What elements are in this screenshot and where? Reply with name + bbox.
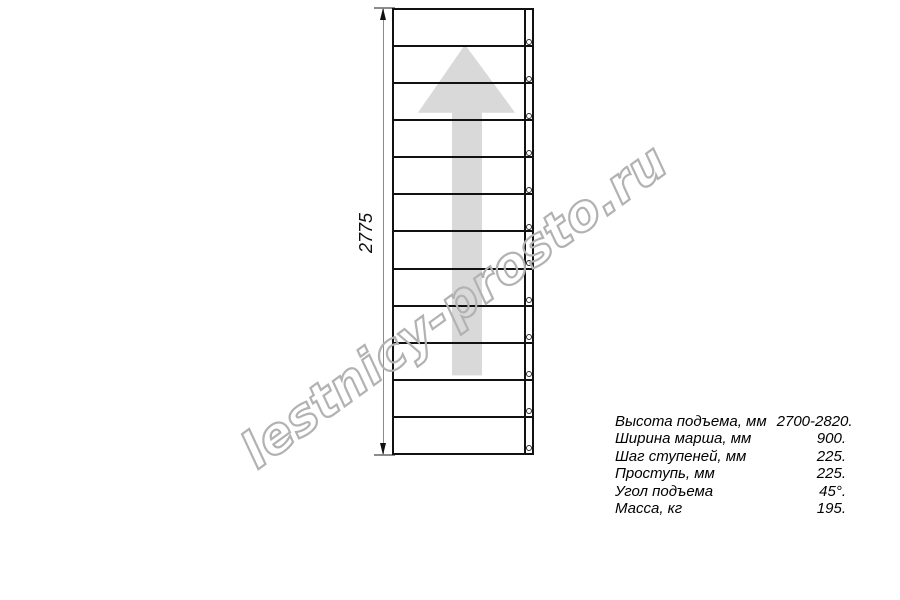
staircase-plan [392, 8, 534, 455]
spec-value: 225. [807, 465, 846, 482]
stringer-cell [526, 232, 532, 269]
spec-row: Ширина марша, мм900. [615, 430, 846, 447]
spec-value: 45°. [809, 483, 846, 500]
tread-row [394, 344, 532, 381]
tread-row [394, 418, 532, 453]
specs-list: Высота подъема, мм2700-2820.Ширина марша… [615, 413, 846, 517]
stringer-cell [526, 84, 532, 121]
bolt-hole-icon [526, 150, 532, 156]
dimension-line [383, 8, 384, 455]
stringer-cell [526, 10, 532, 47]
dimension-arrowhead-down-icon [380, 443, 386, 455]
spec-value: 195. [807, 500, 846, 517]
stringer-cells [526, 10, 532, 453]
tread-row [394, 47, 532, 84]
spec-row: Высота подъема, мм2700-2820. [615, 413, 846, 430]
stringer-cell [526, 305, 532, 342]
stringer-cell [526, 268, 532, 305]
tread-row [394, 381, 532, 418]
stringer-cell [526, 121, 532, 158]
spec-label: Угол подъема [615, 483, 713, 500]
bolt-hole-icon [526, 39, 532, 45]
tread-rows [394, 10, 532, 453]
spec-value: 225. [807, 448, 846, 465]
spec-label: Масса, кг [615, 500, 682, 517]
spec-label: Шаг ступеней, мм [615, 448, 746, 465]
spec-row: Масса, кг195. [615, 500, 846, 517]
bolt-hole-icon [526, 76, 532, 82]
tread-row [394, 232, 532, 269]
tread-row [394, 84, 532, 121]
stringer-cell [526, 158, 532, 195]
stringer-cell [526, 342, 532, 379]
spec-row: Шаг ступеней, мм225. [615, 448, 846, 465]
dimension-label: 2775 [356, 203, 378, 263]
bolt-hole-icon [526, 297, 532, 303]
spec-row: Проступь, мм225. [615, 465, 846, 482]
bolt-hole-icon [526, 408, 532, 414]
spec-value: 900. [807, 430, 846, 447]
stringer-cell [526, 47, 532, 84]
spec-row: Угол подъема45°. [615, 483, 846, 500]
spec-label: Проступь, мм [615, 465, 715, 482]
tread-row [394, 270, 532, 307]
spec-label: Ширина марша, мм [615, 430, 751, 447]
stringer-cell [526, 379, 532, 416]
bolt-hole-icon [526, 371, 532, 377]
tread-row [394, 307, 532, 344]
dimension-arrowhead-up-icon [380, 8, 386, 20]
spec-label: Высота подъема, мм [615, 413, 767, 430]
bolt-hole-icon [526, 334, 532, 340]
stringer-cell [526, 416, 532, 453]
tread-row [394, 158, 532, 195]
stringer-cell [526, 195, 532, 232]
bolt-hole-icon [526, 224, 532, 230]
spec-value: 2700-2820. [767, 413, 853, 430]
bolt-hole-icon [526, 113, 532, 119]
bolt-hole-icon [526, 187, 532, 193]
tread-row [394, 195, 532, 232]
bolt-hole-icon [526, 445, 532, 451]
tread-row [394, 10, 532, 47]
bolt-hole-icon [526, 260, 532, 266]
drawing-canvas: 2775 Высота подъема, мм2700-2820.Ширина … [0, 0, 900, 600]
tread-row [394, 121, 532, 158]
